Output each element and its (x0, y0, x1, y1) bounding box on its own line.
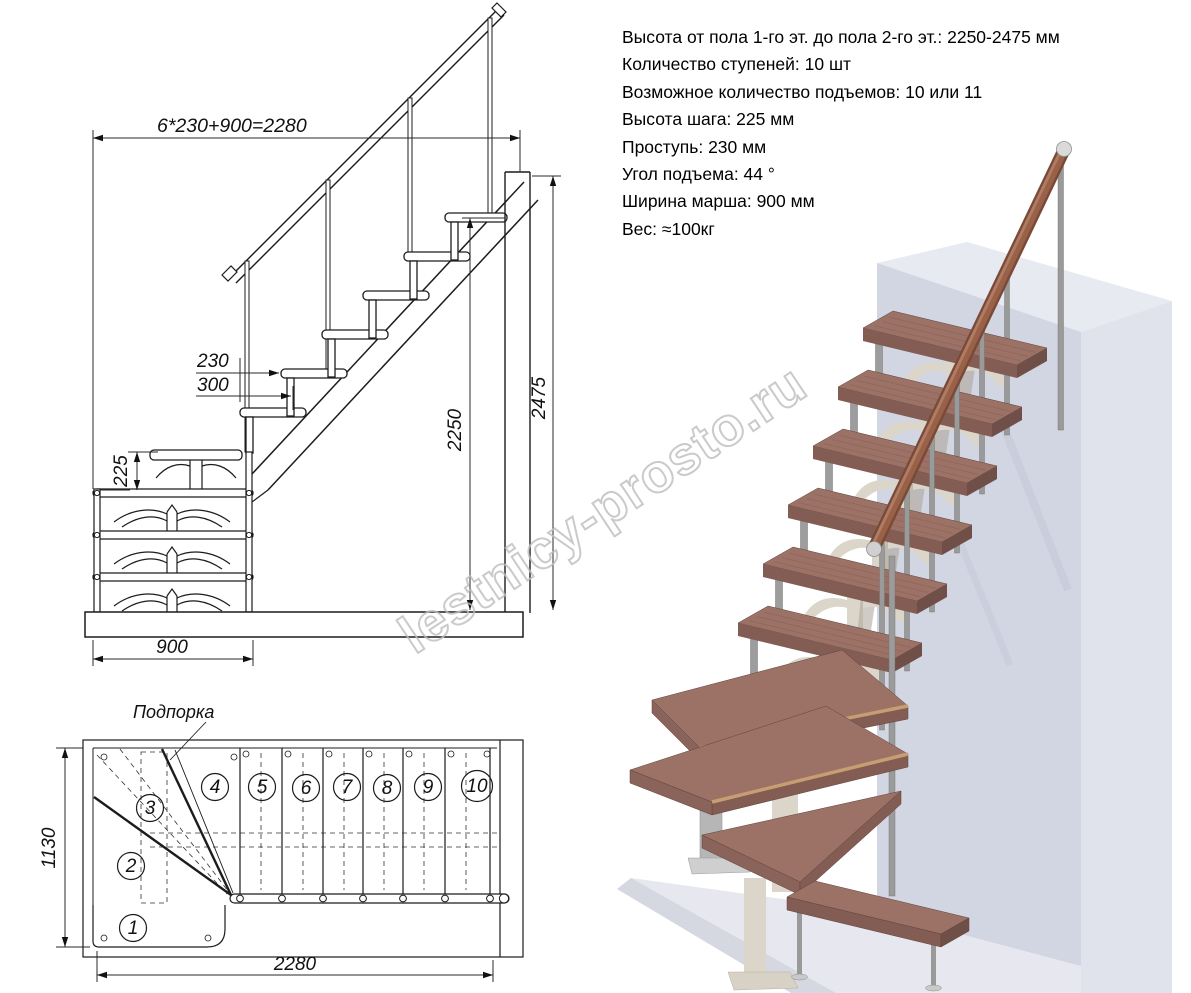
svg-text:4: 4 (210, 777, 221, 798)
spec-line-rise-count: Возможное количество подъемов: 10 или 11 (622, 79, 1182, 106)
spec-line-width: Ширина марша: 900 мм (622, 188, 1182, 215)
plan-structure (83, 722, 523, 957)
dim-width: 900 (156, 637, 188, 658)
dim-tread: 230 (196, 351, 229, 372)
svg-text:2: 2 (125, 856, 137, 877)
spec-line-step-count: Количество ступеней: 10 шт (622, 51, 1182, 78)
dim-total-top: 6*230+900=2280 (157, 115, 307, 137)
render-3d (600, 130, 1191, 993)
handrail-end-cap (867, 542, 882, 557)
svg-text:7: 7 (342, 777, 354, 798)
support-label: Подпорка (133, 702, 214, 722)
svg-text:10: 10 (466, 776, 488, 797)
svg-text:3: 3 (145, 798, 156, 819)
svg-text:1: 1 (128, 918, 139, 939)
svg-text:9: 9 (423, 777, 434, 798)
svg-text:8: 8 (382, 778, 393, 799)
dim-height-max: 2475 (529, 376, 550, 420)
dim-nose: 300 (197, 375, 229, 396)
spec-list: Высота от пола 1-го эт. до пола 2-го эт.… (622, 24, 1182, 243)
spec-line-angle: Угол подъема: 44 ° (622, 161, 1182, 188)
dim-height-min: 2250 (445, 408, 466, 452)
svg-text:6: 6 (301, 778, 312, 799)
svg-text:5: 5 (257, 777, 268, 798)
spec-line-tread: Проступь: 230 мм (622, 134, 1182, 161)
plan-drawing: Подпорка 1130 2280 1 2 3 4 5 6 7 8 9 10 (0, 683, 600, 993)
elevation-drawing: 6*230+900=2280 230 300 225 2250 2475 900 (0, 0, 600, 690)
spec-line-weight: Вес: ≈100кг (622, 216, 1182, 243)
dim-riser: 225 (111, 455, 132, 488)
spec-line-step-height: Высота шага: 225 мм (622, 106, 1182, 133)
staircase-drawing-page: 6*230+900=2280 230 300 225 2250 2475 900 (0, 0, 1191, 993)
spec-line-height-range: Высота от пола 1-го эт. до пола 2-го эт.… (622, 24, 1182, 51)
dim-length: 2280 (273, 954, 317, 975)
dim-depth: 1130 (39, 827, 60, 868)
central-post (889, 556, 895, 896)
